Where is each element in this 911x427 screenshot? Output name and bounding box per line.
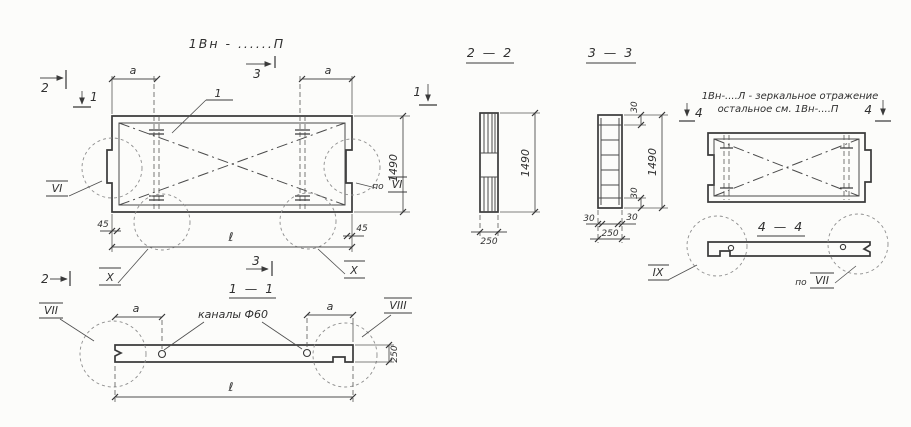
svg-text:VI: VI bbox=[52, 182, 63, 195]
detail-circle-x-left bbox=[134, 194, 190, 250]
drawing-canvas: 1Вн - ......П 1 a a bbox=[0, 0, 911, 427]
section-1-1: 1 — 1 каналы Ф60 a a 250 ℓ VII bbox=[39, 281, 412, 402]
cut-mark-2-bottom: 2 bbox=[41, 271, 70, 286]
svg-text:1: 1 bbox=[413, 85, 421, 99]
svg-text:VII: VII bbox=[815, 274, 829, 287]
cut-mark-1-left: 1 bbox=[73, 90, 98, 107]
detail-circle-po-vii bbox=[828, 214, 888, 274]
dim-30: 30 bbox=[626, 213, 638, 223]
dim-1490: 1490 bbox=[519, 149, 532, 177]
section-strip bbox=[598, 115, 622, 208]
detail-circle-ix bbox=[687, 216, 747, 276]
section-3-3: 3 — 3 30 1490 30 30 30 250 bbox=[583, 45, 668, 243]
plan-view-mirror: 1Вн-....Л - зеркальное отражение остальн… bbox=[679, 91, 891, 202]
svg-text:1: 1 bbox=[90, 90, 98, 104]
svg-text:VI: VI bbox=[392, 178, 403, 191]
cut-mark-2-top: 2 bbox=[40, 70, 66, 95]
svg-text:X: X bbox=[349, 264, 358, 277]
svg-text:VIII: VIII bbox=[389, 299, 406, 312]
dim-250: 250 bbox=[480, 237, 497, 247]
channel-hole bbox=[159, 351, 166, 358]
dim-250: 250 bbox=[390, 345, 400, 362]
svg-text:3: 3 bbox=[253, 67, 261, 81]
dim-a: a bbox=[130, 64, 137, 77]
svg-text:по: по bbox=[795, 278, 807, 288]
mirror-note-line2: остальное см. 1Вн-....П bbox=[718, 104, 839, 115]
detail-label-x-left: X bbox=[99, 249, 148, 285]
detail-circle-x-right bbox=[280, 193, 336, 249]
section-title: 1 — 1 bbox=[229, 281, 275, 296]
svg-text:2: 2 bbox=[41, 272, 49, 286]
section-title: 3 — 3 bbox=[588, 45, 634, 60]
mirror-note-line1: 1Вн-....Л - зеркальное отражение bbox=[702, 91, 879, 102]
dim-30: 30 bbox=[630, 101, 640, 113]
detail-label-vii: VII bbox=[39, 303, 94, 341]
position-callout: 1 bbox=[215, 87, 222, 100]
panel-outline bbox=[107, 116, 352, 212]
dim-30: 30 bbox=[583, 214, 595, 224]
svg-text:X: X bbox=[105, 271, 114, 284]
section-4-4: 4 — 4 IX по VII bbox=[648, 214, 888, 288]
panel-outline bbox=[708, 133, 871, 202]
dim-a: a bbox=[325, 64, 332, 77]
channel-hole bbox=[304, 350, 311, 357]
dim-45: 45 bbox=[97, 220, 109, 230]
cut-mark-3-top: 3 bbox=[246, 56, 275, 81]
dim-length: ℓ bbox=[228, 230, 234, 244]
channel-hole bbox=[728, 245, 733, 250]
detail-label-x-right: X bbox=[318, 249, 365, 278]
strip-outline bbox=[115, 345, 353, 362]
detail-circle-vii bbox=[80, 321, 146, 387]
cut-mark-1-right: 1 bbox=[413, 84, 437, 105]
cut-mark-3-bottom: 3 bbox=[246, 254, 272, 276]
dim-45: 45 bbox=[356, 224, 368, 234]
detail-label-vi: VI bbox=[46, 181, 102, 196]
detail-label-ix: IX bbox=[648, 265, 697, 280]
cut-mark-4-right: 4 bbox=[864, 100, 891, 121]
svg-text:3: 3 bbox=[252, 254, 260, 268]
svg-text:2: 2 bbox=[41, 81, 49, 95]
dim-250: 250 bbox=[601, 229, 618, 239]
svg-text:4: 4 bbox=[864, 103, 872, 117]
section-title: 4 — 4 bbox=[758, 219, 804, 234]
svg-text:IX: IX bbox=[653, 266, 664, 279]
svg-text:VII: VII bbox=[44, 304, 58, 317]
channels-callout: каналы Ф60 bbox=[198, 308, 268, 321]
drawing-title: 1Вн - ......П bbox=[189, 36, 285, 51]
cut-mark-4-left: 4 bbox=[679, 103, 703, 121]
detail-label-po-vii: по VII bbox=[795, 266, 856, 288]
dim-30: 30 bbox=[630, 187, 640, 199]
svg-text:по: по bbox=[372, 182, 384, 192]
channel-hole bbox=[840, 244, 845, 249]
svg-text:4: 4 bbox=[695, 106, 703, 120]
blueprint-page: 1Вн - ......П 1 a a bbox=[0, 0, 911, 427]
strip-outline bbox=[708, 242, 870, 256]
detail-label-po-vi: по VI bbox=[356, 177, 407, 192]
dim-length: ℓ bbox=[228, 380, 234, 394]
detail-label-viii: VIII bbox=[362, 298, 412, 337]
dim-a: a bbox=[133, 302, 140, 315]
section-2-2: 2 — 2 1490 250 bbox=[466, 45, 540, 247]
dim-1490: 1490 bbox=[646, 148, 659, 176]
section-title: 2 — 2 bbox=[467, 45, 513, 60]
dim-a: a bbox=[327, 300, 334, 313]
plan-view-main: 1Вн - ......П 1 a a bbox=[40, 36, 437, 286]
